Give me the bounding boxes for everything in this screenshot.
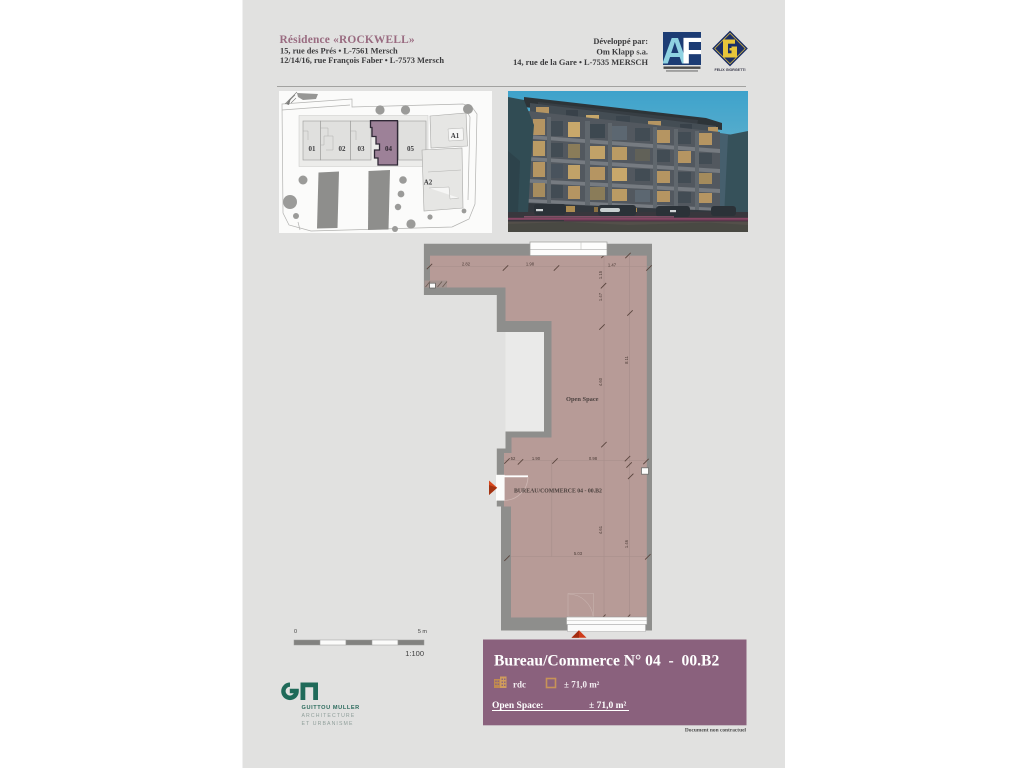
svg-text:12/14/16, rue François Faber •: 12/14/16, rue François Faber • L-7573 Me…: [280, 56, 444, 65]
svg-text:02: 02: [339, 145, 347, 153]
svg-text:52: 52: [511, 456, 516, 461]
svg-text:4.60: 4.60: [598, 377, 603, 386]
svg-text:A1: A1: [451, 132, 460, 140]
svg-text:± 71,0 m²: ± 71,0 m²: [589, 701, 627, 711]
svg-text:01: 01: [309, 145, 317, 153]
svg-text:1.47: 1.47: [608, 263, 617, 268]
svg-text:2.82: 2.82: [462, 262, 471, 267]
svg-text:BUREAU/COMMERCE 04 - 00.B2: BUREAU/COMMERCE 04 - 00.B2: [514, 489, 602, 495]
svg-text:04: 04: [385, 145, 393, 153]
svg-text:0: 0: [294, 629, 297, 635]
svg-text:Document non contractuel: Document non contractuel: [685, 728, 747, 734]
svg-text:Om Klapp s.a.: Om Klapp s.a.: [596, 48, 648, 57]
svg-text:5.03: 5.03: [574, 551, 583, 556]
svg-text:A2: A2: [424, 179, 433, 187]
svg-text:03: 03: [358, 145, 366, 153]
svg-text:1.47: 1.47: [598, 292, 603, 301]
svg-text:Résidence «ROCKWELL»: Résidence «ROCKWELL»: [280, 34, 415, 46]
svg-text:ARCHITECTURE: ARCHITECTURE: [302, 713, 356, 719]
svg-text:± 71,0 m²: ± 71,0 m²: [564, 680, 600, 690]
svg-text:1.90: 1.90: [532, 456, 541, 461]
svg-text:1.98: 1.98: [526, 262, 535, 267]
svg-text:Bureau/Commerce N° 04 - 00.B: Bureau/Commerce N° 04 - 00.B2: [494, 653, 719, 670]
svg-text:15, rue des Prés • L-7561 Mers: 15, rue des Prés • L-7561 Mersch: [280, 47, 398, 56]
svg-text:5 m: 5 m: [418, 629, 428, 635]
svg-text:rdc: rdc: [513, 680, 526, 690]
svg-text:Open Space: Open Space: [566, 396, 599, 403]
svg-text:8.11: 8.11: [624, 355, 629, 364]
svg-text:ET URBANISME: ET URBANISME: [302, 721, 354, 727]
svg-text:1.46: 1.46: [624, 539, 629, 548]
svg-text:FELIX GIORGETTI: FELIX GIORGETTI: [715, 68, 746, 72]
svg-text:Open Space:: Open Space:: [492, 701, 543, 711]
svg-text:Développé par:: Développé par:: [593, 37, 648, 46]
svg-text:14, rue de la Gare • L-7535 ME: 14, rue de la Gare • L-7535 MERSCH: [513, 58, 648, 67]
svg-text:4.61: 4.61: [598, 525, 603, 534]
svg-text:0.98: 0.98: [589, 456, 598, 461]
svg-text:GUITTOU MULLER: GUITTOU MULLER: [302, 705, 360, 711]
svg-text:1.15: 1.15: [598, 270, 603, 279]
svg-text:1:100: 1:100: [405, 649, 424, 658]
svg-text:05: 05: [407, 145, 415, 153]
